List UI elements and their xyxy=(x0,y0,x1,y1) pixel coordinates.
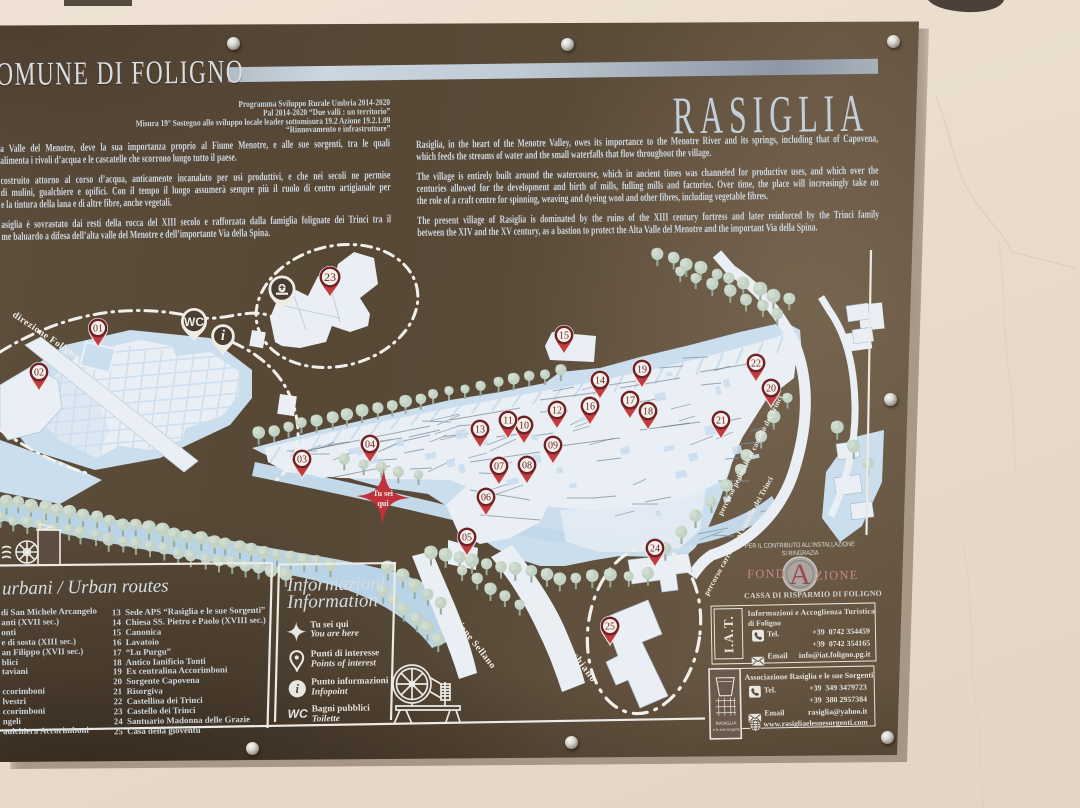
svg-text:13: 13 xyxy=(475,424,485,435)
svg-text:18: 18 xyxy=(643,406,653,417)
svg-text:24: 24 xyxy=(650,543,660,554)
svg-text:21: 21 xyxy=(716,415,726,426)
svg-text:23: 23 xyxy=(324,270,336,284)
svg-text:11: 11 xyxy=(503,415,513,426)
svg-text:e le sue sorgenti: e le sue sorgenti xyxy=(713,727,740,732)
svg-text:WC: WC xyxy=(184,315,204,329)
svg-text:25: 25 xyxy=(605,621,615,632)
svg-text:07: 07 xyxy=(494,461,504,472)
svg-text:08: 08 xyxy=(522,460,532,471)
svg-text:qui: qui xyxy=(377,499,389,508)
svg-text:05: 05 xyxy=(462,532,472,543)
svg-text:16: 16 xyxy=(585,401,595,412)
svg-text:A: A xyxy=(789,558,811,591)
svg-text:03: 03 xyxy=(297,454,307,465)
svg-text:19: 19 xyxy=(637,364,647,375)
svg-text:20: 20 xyxy=(766,383,776,394)
svg-text:RASIGLIA: RASIGLIA xyxy=(716,720,737,725)
svg-text:06: 06 xyxy=(481,492,491,503)
svg-text:01: 01 xyxy=(93,323,103,334)
svg-text:14: 14 xyxy=(595,375,605,386)
svg-text:09: 09 xyxy=(548,440,558,451)
svg-text:04: 04 xyxy=(365,439,375,450)
svg-text:17: 17 xyxy=(625,395,635,406)
svg-text:02: 02 xyxy=(34,367,44,378)
svg-text:15: 15 xyxy=(559,330,569,341)
svg-text:Tu sei: Tu sei xyxy=(373,489,394,498)
svg-text:i: i xyxy=(295,681,299,696)
svg-text:10: 10 xyxy=(519,420,529,431)
svg-text:12: 12 xyxy=(552,405,562,416)
svg-text:22: 22 xyxy=(751,358,761,369)
